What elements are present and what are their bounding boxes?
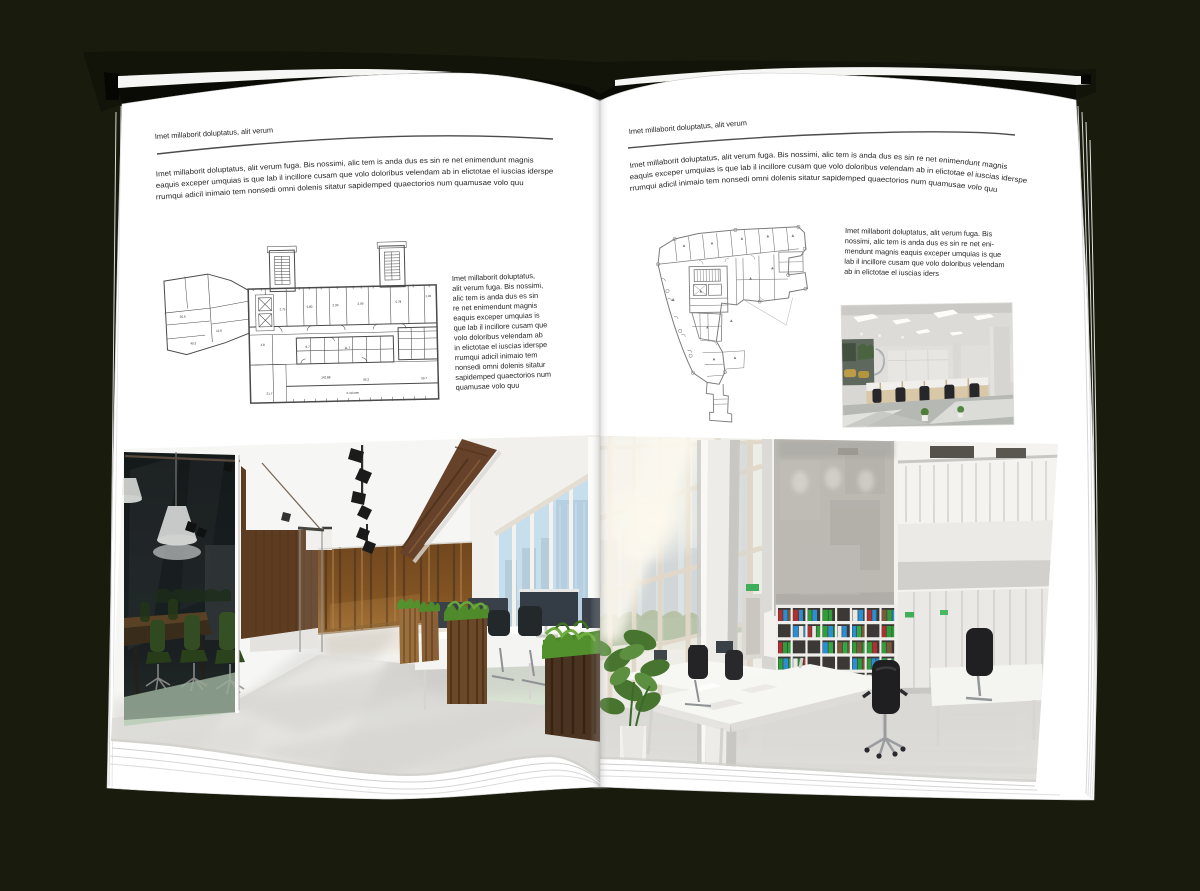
- svg-text:5.78: 5.78: [395, 300, 401, 304]
- svg-text:11.7: 11.7: [344, 346, 350, 350]
- svg-text:2.75: 2.75: [280, 307, 286, 311]
- svg-text:40.3: 40.3: [190, 341, 196, 345]
- svg-text:95.3: 95.3: [363, 377, 369, 381]
- svg-text:6.7: 6.7: [305, 345, 310, 349]
- svg-text:2.30: 2.30: [332, 303, 338, 307]
- svg-text:1.45: 1.45: [425, 294, 431, 298]
- svg-text:12.6: 12.6: [216, 329, 222, 333]
- svg-text:50.7: 50.7: [421, 376, 427, 380]
- svg-text:2-nd over: 2-nd over: [346, 391, 359, 395]
- svg-text:4.8: 4.8: [260, 343, 265, 347]
- svg-text:2.80: 2.80: [307, 305, 313, 309]
- svg-text:21.7: 21.7: [266, 392, 272, 396]
- svg-text:142.88: 142.88: [321, 375, 331, 379]
- svg-text:3.09: 3.09: [357, 302, 363, 306]
- svg-text:30.6: 30.6: [180, 315, 186, 319]
